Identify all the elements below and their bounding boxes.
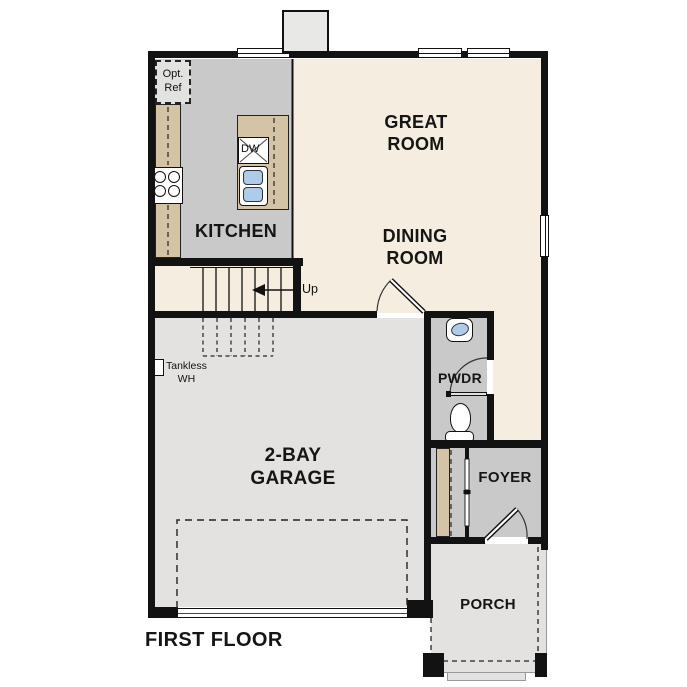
- great-room-label: GREATROOM: [384, 112, 447, 156]
- first-floor-title: FIRST FLOOR: [145, 628, 283, 652]
- cooktop: [151, 167, 183, 204]
- chimney-bumpout: [282, 10, 329, 53]
- powder-sink-basin: [450, 321, 471, 338]
- front-door-threshold: [486, 538, 528, 544]
- dining-room-label: DININGROOM: [383, 226, 448, 270]
- porch-post-right: [535, 653, 547, 677]
- window-top-middle: [418, 48, 462, 58]
- wall-stair-side: [293, 258, 301, 313]
- wall-powder-east-upper: [487, 311, 494, 360]
- wall-hall-west: [424, 311, 431, 618]
- burner-icon: [154, 171, 166, 183]
- toilet-bowl: [450, 403, 471, 433]
- up-label: Up: [302, 282, 318, 298]
- great-room-floor: [293, 59, 541, 313]
- wall-garage-north: [148, 311, 377, 318]
- kitchen-sink: [239, 166, 268, 206]
- kitchen-label: KITCHEN: [195, 221, 277, 243]
- sink-basin: [243, 187, 263, 202]
- burner-icon: [154, 185, 166, 197]
- porch-step: [447, 672, 526, 681]
- wall-kitchen-south: [148, 258, 303, 266]
- wall-garage-south-right: [407, 600, 433, 618]
- window-top-right: [467, 48, 510, 58]
- garage-door-opening: [178, 608, 407, 618]
- powder-room-label: PWDR: [438, 370, 482, 387]
- sink-basin: [243, 170, 263, 185]
- hall-strip-floor: [493, 313, 541, 440]
- wall-left-exterior: [148, 51, 155, 618]
- wall-powder-north: [424, 311, 494, 318]
- stair-hall-floor: [155, 258, 293, 313]
- window-right-wall: [540, 215, 549, 257]
- tankless-wh-label: TanklessWH: [166, 360, 207, 386]
- burner-icon: [168, 185, 180, 197]
- optional-refrigerator-box: Opt.Ref: [155, 60, 191, 104]
- garage-door-line: [178, 613, 407, 614]
- garage-label: 2-BAYGARAGE: [250, 444, 335, 490]
- porch-label: PORCH: [460, 596, 516, 614]
- wall-garage-south-left: [148, 607, 178, 618]
- burner-icon: [168, 171, 180, 183]
- foyer-label: FOYER: [478, 469, 531, 487]
- wall-foyer-south-right: [528, 537, 548, 544]
- optional-refrigerator-label: Opt.Ref: [163, 68, 184, 96]
- wall-right-exterior: [541, 51, 548, 550]
- dishwasher-label: DW: [241, 143, 259, 157]
- wall-foyer-north: [424, 440, 541, 448]
- powder-sink: [446, 318, 473, 342]
- floor-plan: Opt.Ref: [0, 0, 687, 687]
- wall-foyer-south-left: [431, 537, 485, 544]
- foyer-closet-shelf: [436, 448, 450, 537]
- porch-post-left: [423, 653, 444, 677]
